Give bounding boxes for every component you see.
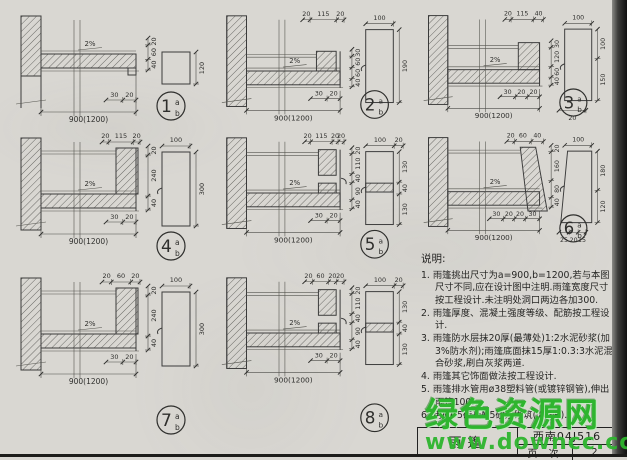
detail-figure-6: 2%20604020160804030202030900(1200)100180… (414, 126, 612, 252)
svg-text:40: 40 (150, 339, 158, 347)
svg-text:130: 130 (401, 161, 409, 173)
svg-text:40: 40 (150, 61, 158, 69)
svg-text:40: 40 (354, 340, 362, 348)
svg-text:20: 20 (302, 10, 310, 18)
svg-text:40: 40 (354, 79, 362, 87)
detail-drawing-8: 2%20602020201104090403020900(1200)100201… (212, 266, 414, 454)
svg-text:2%: 2% (490, 56, 501, 64)
svg-text:80: 80 (554, 185, 561, 193)
note-item: 5. 雨篷排水管用ø38塑料管(或镀锌钢管),伸出雨篷100. (421, 384, 615, 409)
svg-text:20: 20 (150, 146, 158, 154)
svg-text:5: 5 (365, 234, 376, 254)
svg-text:20: 20 (354, 147, 362, 155)
svg-text:2: 2 (365, 94, 376, 114)
svg-text:30: 30 (110, 91, 118, 99)
svg-text:a: a (175, 238, 180, 247)
scan-edge-shadow (612, 0, 627, 457)
svg-text:20: 20 (330, 212, 338, 220)
svg-text:4: 4 (161, 237, 172, 257)
svg-text:130: 130 (401, 301, 409, 313)
svg-text:180: 180 (600, 165, 607, 177)
svg-text:60: 60 (354, 58, 362, 66)
note-item: 4. 雨篷其它饰面做法按工程设计. (421, 371, 615, 383)
svg-text:2%: 2% (84, 180, 95, 188)
page-number-row: 页 次 2 (518, 445, 616, 460)
title-block: 雨篷 西南04J516 页 次 2 (417, 427, 617, 455)
svg-text:160: 160 (554, 160, 561, 172)
svg-text:b: b (379, 107, 384, 116)
svg-text:20: 20 (132, 132, 140, 140)
svg-text:30: 30 (504, 89, 512, 96)
svg-text:20: 20 (337, 132, 345, 140)
svg-text:90: 90 (354, 187, 362, 195)
detail-drawing-1: 2%2060403020900(1200)1201ab (6, 4, 211, 126)
svg-text:240: 240 (150, 169, 158, 181)
svg-text:30: 30 (110, 353, 118, 361)
svg-text:20: 20 (150, 37, 158, 45)
svg-text:120: 120 (554, 51, 561, 63)
svg-text:2%: 2% (289, 179, 300, 187)
svg-text:2%: 2% (289, 57, 300, 65)
notes-heading: 说明: (421, 251, 615, 266)
svg-text:20: 20 (150, 286, 158, 294)
detail-figure-2: 2%2011520306060403020900(1200)1001902ab (212, 4, 414, 126)
svg-text:100: 100 (374, 136, 386, 144)
svg-text:240: 240 (150, 309, 158, 321)
svg-text:30: 30 (315, 352, 323, 360)
svg-text:b: b (577, 231, 582, 240)
svg-text:20: 20 (507, 133, 515, 140)
svg-text:100: 100 (374, 276, 386, 284)
svg-text:900(1200): 900(1200) (475, 111, 513, 120)
svg-text:60: 60 (554, 68, 561, 76)
svg-text:900(1200): 900(1200) (274, 235, 313, 244)
detail-figure-8: 2%20602020201104090403020900(1200)100201… (212, 266, 414, 454)
svg-text:115: 115 (516, 11, 528, 18)
svg-text:40: 40 (533, 133, 541, 140)
svg-text:100: 100 (170, 276, 182, 284)
svg-text:b: b (175, 249, 180, 258)
note-item: 3. 雨篷防水层抹20厚(最薄处)1:2水泥砂浆(加3%防水剂);雨篷底面抹15… (421, 333, 615, 370)
svg-text:20: 20 (517, 89, 525, 96)
svg-text:120: 120 (600, 200, 607, 212)
svg-text:b: b (175, 109, 180, 118)
svg-text:20: 20 (125, 353, 133, 361)
svg-text:20: 20 (125, 91, 133, 99)
svg-text:40: 40 (401, 324, 409, 332)
svg-text:115: 115 (315, 132, 327, 140)
svg-text:20: 20 (395, 276, 403, 284)
detail-drawing-7: 2%20602020240403020900(1200)1003007ab (6, 266, 211, 454)
svg-text:20: 20 (101, 132, 109, 140)
svg-text:150: 150 (600, 74, 607, 86)
svg-text:40: 40 (401, 184, 409, 192)
svg-text:100: 100 (373, 14, 385, 22)
svg-text:90: 90 (354, 327, 362, 335)
svg-text:300: 300 (198, 183, 206, 195)
svg-text:20: 20 (330, 352, 338, 360)
svg-text:900(1200): 900(1200) (274, 113, 313, 122)
page-number: 2 (573, 445, 616, 460)
svg-text:40: 40 (354, 174, 362, 182)
svg-text:900(1200): 900(1200) (475, 233, 513, 242)
svg-text:6: 6 (564, 219, 574, 238)
svg-text:b: b (577, 105, 582, 114)
svg-text:60: 60 (316, 272, 324, 280)
svg-text:40: 40 (554, 77, 561, 85)
svg-text:a: a (577, 95, 581, 104)
svg-text:a: a (379, 97, 384, 106)
svg-text:40: 40 (354, 200, 362, 208)
svg-text:3: 3 (564, 93, 574, 112)
svg-text:20: 20 (330, 90, 338, 98)
svg-text:30: 30 (492, 211, 500, 218)
svg-text:60: 60 (150, 48, 158, 56)
svg-text:20: 20 (530, 89, 538, 96)
svg-text:7: 7 (161, 411, 172, 431)
svg-text:20: 20 (516, 211, 524, 218)
svg-text:900(1200): 900(1200) (69, 377, 108, 386)
svg-text:300: 300 (198, 323, 206, 335)
svg-text:b: b (379, 247, 384, 256)
svg-text:900(1200): 900(1200) (274, 375, 313, 384)
detail-figure-3: 2%2011540301206040302020900(1200)1001001… (414, 4, 612, 126)
detail-drawing-4: 2%201152020240403020900(1200)1003004ab (6, 126, 211, 266)
svg-text:100: 100 (572, 14, 584, 21)
svg-text:120: 120 (198, 62, 206, 74)
svg-text:30: 30 (315, 90, 323, 98)
svg-text:30: 30 (529, 211, 537, 218)
svg-text:b: b (379, 421, 384, 430)
svg-text:20: 20 (336, 272, 344, 280)
svg-text:40: 40 (535, 11, 543, 18)
notes-panel: 说明: 1. 雨篷挑出尺寸为a=900,b=1200,若与本图尺寸不同,应在设计… (421, 251, 615, 423)
svg-text:20: 20 (304, 132, 312, 140)
detail-figure-4: 2%201152020240403020900(1200)1003004ab (6, 126, 211, 266)
svg-text:20: 20 (131, 272, 139, 280)
svg-text:40: 40 (554, 198, 561, 206)
atlas-code: 西南04J516 (518, 428, 616, 445)
svg-text:a: a (379, 410, 384, 419)
svg-text:2%: 2% (84, 320, 95, 328)
svg-text:60: 60 (117, 272, 125, 280)
svg-text:115: 115 (115, 132, 127, 140)
svg-text:30: 30 (315, 212, 323, 220)
svg-text:8: 8 (365, 408, 376, 428)
detail-figure-7: 2%20602020240403020900(1200)1003007ab (6, 266, 211, 454)
svg-text:a: a (379, 236, 384, 245)
svg-text:b: b (175, 423, 180, 432)
svg-text:115: 115 (317, 10, 329, 18)
detail-figure-5: 2%201152020201104090403020900(1200)10020… (212, 126, 414, 266)
svg-text:100: 100 (572, 136, 584, 143)
svg-text:900(1200): 900(1200) (69, 237, 108, 246)
svg-text:20: 20 (395, 136, 403, 144)
svg-text:1: 1 (161, 97, 172, 117)
svg-text:20: 20 (336, 10, 344, 18)
svg-text:60: 60 (519, 133, 527, 140)
svg-text:110: 110 (354, 158, 362, 170)
svg-text:20: 20 (504, 11, 512, 18)
detail-drawing-2: 2%2011520306060403020900(1200)1001902ab (212, 4, 414, 126)
svg-text:2%: 2% (490, 178, 501, 186)
svg-text:20: 20 (554, 145, 561, 153)
svg-text:20: 20 (125, 213, 133, 221)
svg-text:100: 100 (600, 38, 607, 50)
svg-text:40: 40 (150, 199, 158, 207)
svg-text:190: 190 (401, 60, 409, 72)
page-label: 页 次 (518, 445, 573, 460)
svg-text:30: 30 (354, 49, 362, 57)
svg-text:100: 100 (170, 136, 182, 144)
svg-text:60: 60 (354, 69, 362, 77)
svg-text:20: 20 (304, 272, 312, 280)
svg-text:20: 20 (103, 272, 111, 280)
svg-text:110: 110 (354, 298, 362, 310)
drawing-title: 雨篷 (418, 428, 518, 454)
svg-text:130: 130 (401, 203, 409, 215)
detail-drawing-6: 2%20604020160804030202030900(1200)100180… (414, 126, 612, 252)
note-item: 1. 雨篷挑出尺寸为a=900,b=1200,若与本图尺寸不同,应在设计图中注明… (421, 270, 615, 307)
svg-text:a: a (175, 412, 180, 421)
svg-text:2%: 2% (289, 319, 300, 327)
svg-text:a: a (577, 220, 581, 229)
svg-text:30: 30 (554, 40, 561, 48)
svg-text:20: 20 (505, 211, 513, 218)
svg-text:a: a (175, 98, 180, 107)
svg-text:900(1200): 900(1200) (69, 115, 108, 124)
svg-text:2%: 2% (84, 40, 95, 48)
note-item: 6. 用MU5砖及M5砂浆砌筑(②~⑧). (421, 410, 615, 422)
detail-drawing-5: 2%201152020201104090403020900(1200)10020… (212, 126, 414, 266)
detail-figure-1: 2%2060403020900(1200)1201ab (6, 4, 211, 126)
svg-text:130: 130 (401, 343, 409, 355)
detail-drawing-3: 2%2011540301206040302020900(1200)1001001… (414, 4, 612, 126)
note-item: 2. 雨篷厚度、混凝土强度等级、配筋按工程设计. (421, 308, 615, 333)
svg-text:20: 20 (354, 287, 362, 295)
svg-text:40: 40 (354, 314, 362, 322)
svg-text:30: 30 (110, 213, 118, 221)
